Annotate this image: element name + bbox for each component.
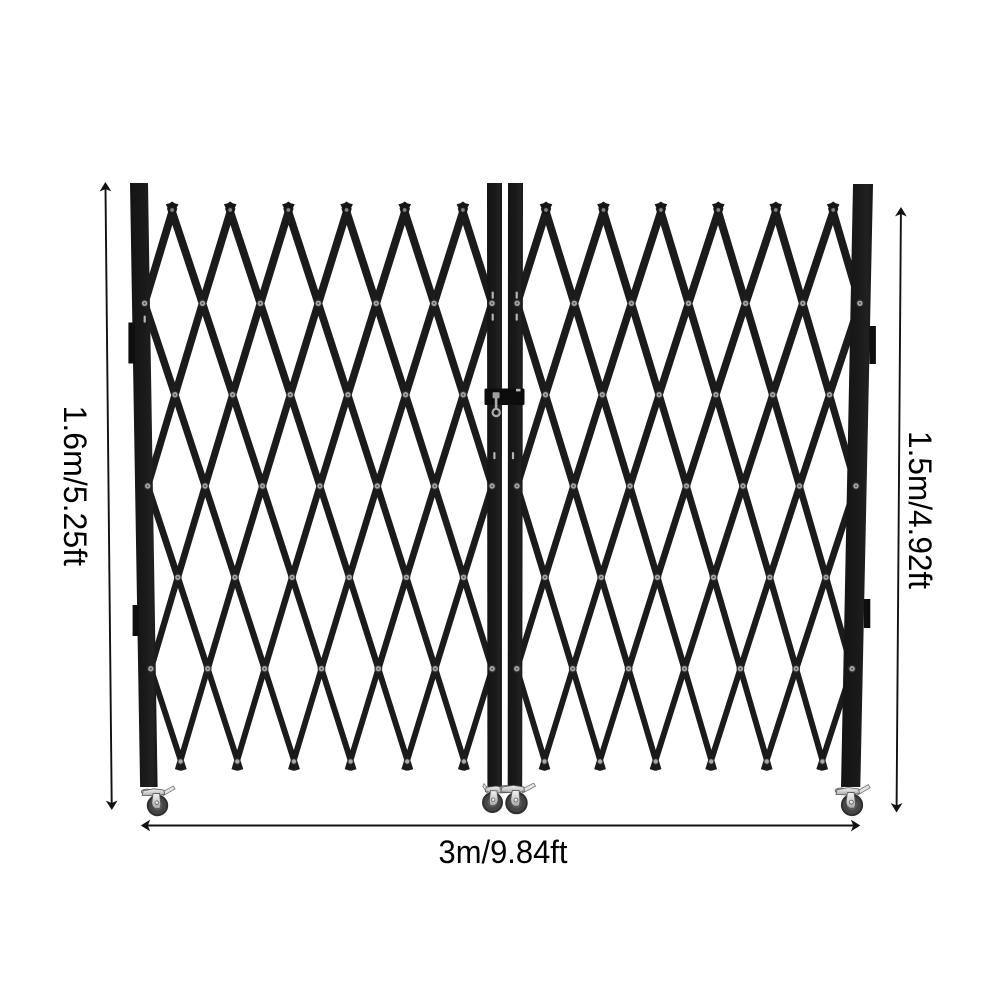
svg-text:3m/9.84ft: 3m/9.84ft (439, 834, 568, 870)
svg-text:1.5m/4.92ft: 1.5m/4.92ft (902, 431, 938, 589)
svg-text:1.6m/5.25ft: 1.6m/5.25ft (57, 406, 93, 567)
